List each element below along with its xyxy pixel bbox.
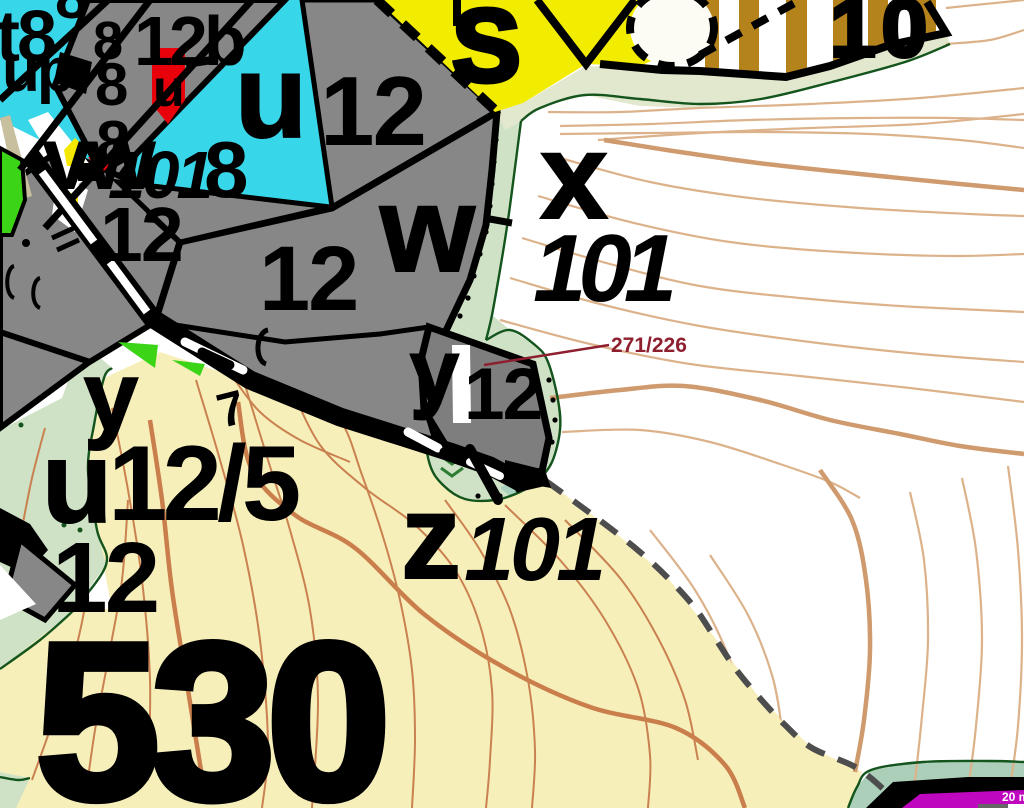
svg-text:w: w xyxy=(379,161,476,297)
svg-text:271/226: 271/226 xyxy=(611,334,687,357)
svg-text:z: z xyxy=(401,470,461,604)
svg-text:12b: 12b xyxy=(134,2,244,80)
svg-text:12: 12 xyxy=(320,56,425,166)
svg-text:101: 101 xyxy=(533,215,673,322)
svg-text:12: 12 xyxy=(259,228,357,330)
svg-text:y: y xyxy=(410,321,459,420)
svg-text:20 m: 20 m xyxy=(1002,790,1024,804)
svg-text:u: u xyxy=(235,31,307,163)
svg-text:530: 530 xyxy=(36,598,382,808)
svg-text:12: 12 xyxy=(100,192,182,278)
svg-text:10: 10 xyxy=(830,0,933,74)
svg-text:12: 12 xyxy=(464,354,541,435)
svg-text:up: up xyxy=(2,36,73,105)
svg-text:S: S xyxy=(452,0,521,103)
svg-text:8: 8 xyxy=(95,51,128,118)
svg-text:8: 8 xyxy=(55,0,88,31)
svg-text:101: 101 xyxy=(464,500,602,600)
